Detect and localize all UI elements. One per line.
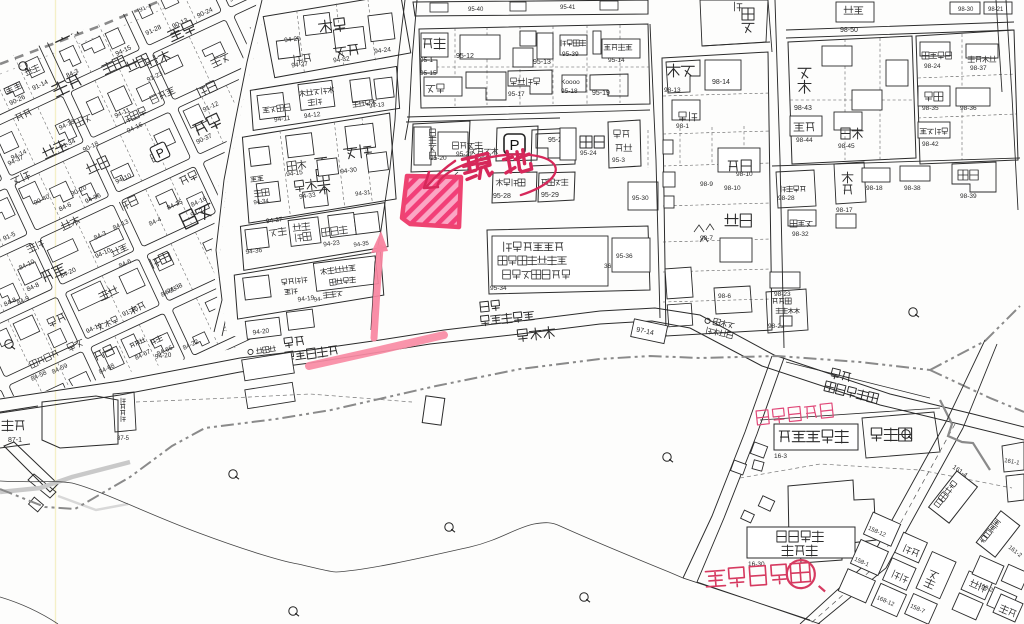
svg-text:98-10: 98-10 [724, 185, 741, 192]
svg-text:95-3: 95-3 [612, 157, 625, 164]
svg-text:94-: 94- [314, 297, 323, 304]
svg-text:95-29: 95-29 [541, 192, 559, 199]
svg-text:98-17: 98-17 [836, 207, 853, 214]
svg-text:95-28: 95-28 [493, 193, 511, 200]
svg-text:98-35: 98-35 [922, 105, 939, 112]
svg-text:95-13: 95-13 [533, 59, 551, 66]
svg-text:98-44: 98-44 [796, 137, 813, 144]
svg-text:Koooo: Koooo [561, 79, 580, 86]
svg-text:98-42: 98-42 [922, 141, 939, 148]
svg-text:95-18: 95-18 [561, 88, 578, 95]
svg-text:95-36: 95-36 [616, 253, 633, 260]
svg-text:16-3: 16-3 [774, 453, 787, 460]
svg-text:98-10: 98-10 [736, 171, 753, 178]
svg-text:98-30: 98-30 [958, 7, 974, 13]
svg-text:98-38: 98-38 [904, 185, 921, 192]
svg-text:98-43: 98-43 [794, 105, 812, 112]
svg-text:95-34: 95-34 [490, 285, 507, 292]
svg-text:95-15: 95-15 [420, 70, 437, 77]
svg-text:98-24: 98-24 [924, 63, 941, 70]
svg-text:95-39: 95-39 [562, 51, 579, 58]
svg-text:98-6: 98-6 [718, 293, 731, 300]
svg-text:98-32: 98-32 [792, 231, 809, 238]
svg-text:95-20: 95-20 [430, 155, 447, 162]
svg-text:98-1: 98-1 [676, 123, 689, 130]
svg-text:95-1: 95-1 [420, 57, 433, 64]
svg-text:95-12: 95-12 [456, 53, 474, 60]
svg-text:95-30: 95-30 [632, 195, 649, 202]
svg-text:98-9: 98-9 [700, 181, 713, 188]
svg-text:95-14: 95-14 [608, 57, 625, 64]
svg-text:98-36: 98-36 [960, 105, 977, 112]
svg-text:98-45: 98-45 [838, 143, 855, 150]
svg-text:95-17: 95-17 [508, 91, 525, 98]
svg-text:98-13: 98-13 [664, 87, 681, 94]
svg-text:98-39: 98-39 [960, 193, 977, 200]
svg-text:98-21: 98-21 [988, 7, 1004, 13]
svg-text:95-19: 95-19 [592, 90, 610, 97]
svg-text:98-14: 98-14 [712, 79, 730, 86]
svg-text:95-24: 95-24 [580, 150, 597, 157]
svg-text:98-18: 98-18 [866, 185, 883, 192]
svg-text:95-40: 95-40 [468, 7, 484, 13]
svg-text:98-37: 98-37 [970, 65, 987, 72]
svg-text:95-41: 95-41 [560, 5, 576, 11]
svg-text:36: 36 [604, 263, 612, 270]
svg-text:87-5: 87-5 [117, 436, 130, 442]
